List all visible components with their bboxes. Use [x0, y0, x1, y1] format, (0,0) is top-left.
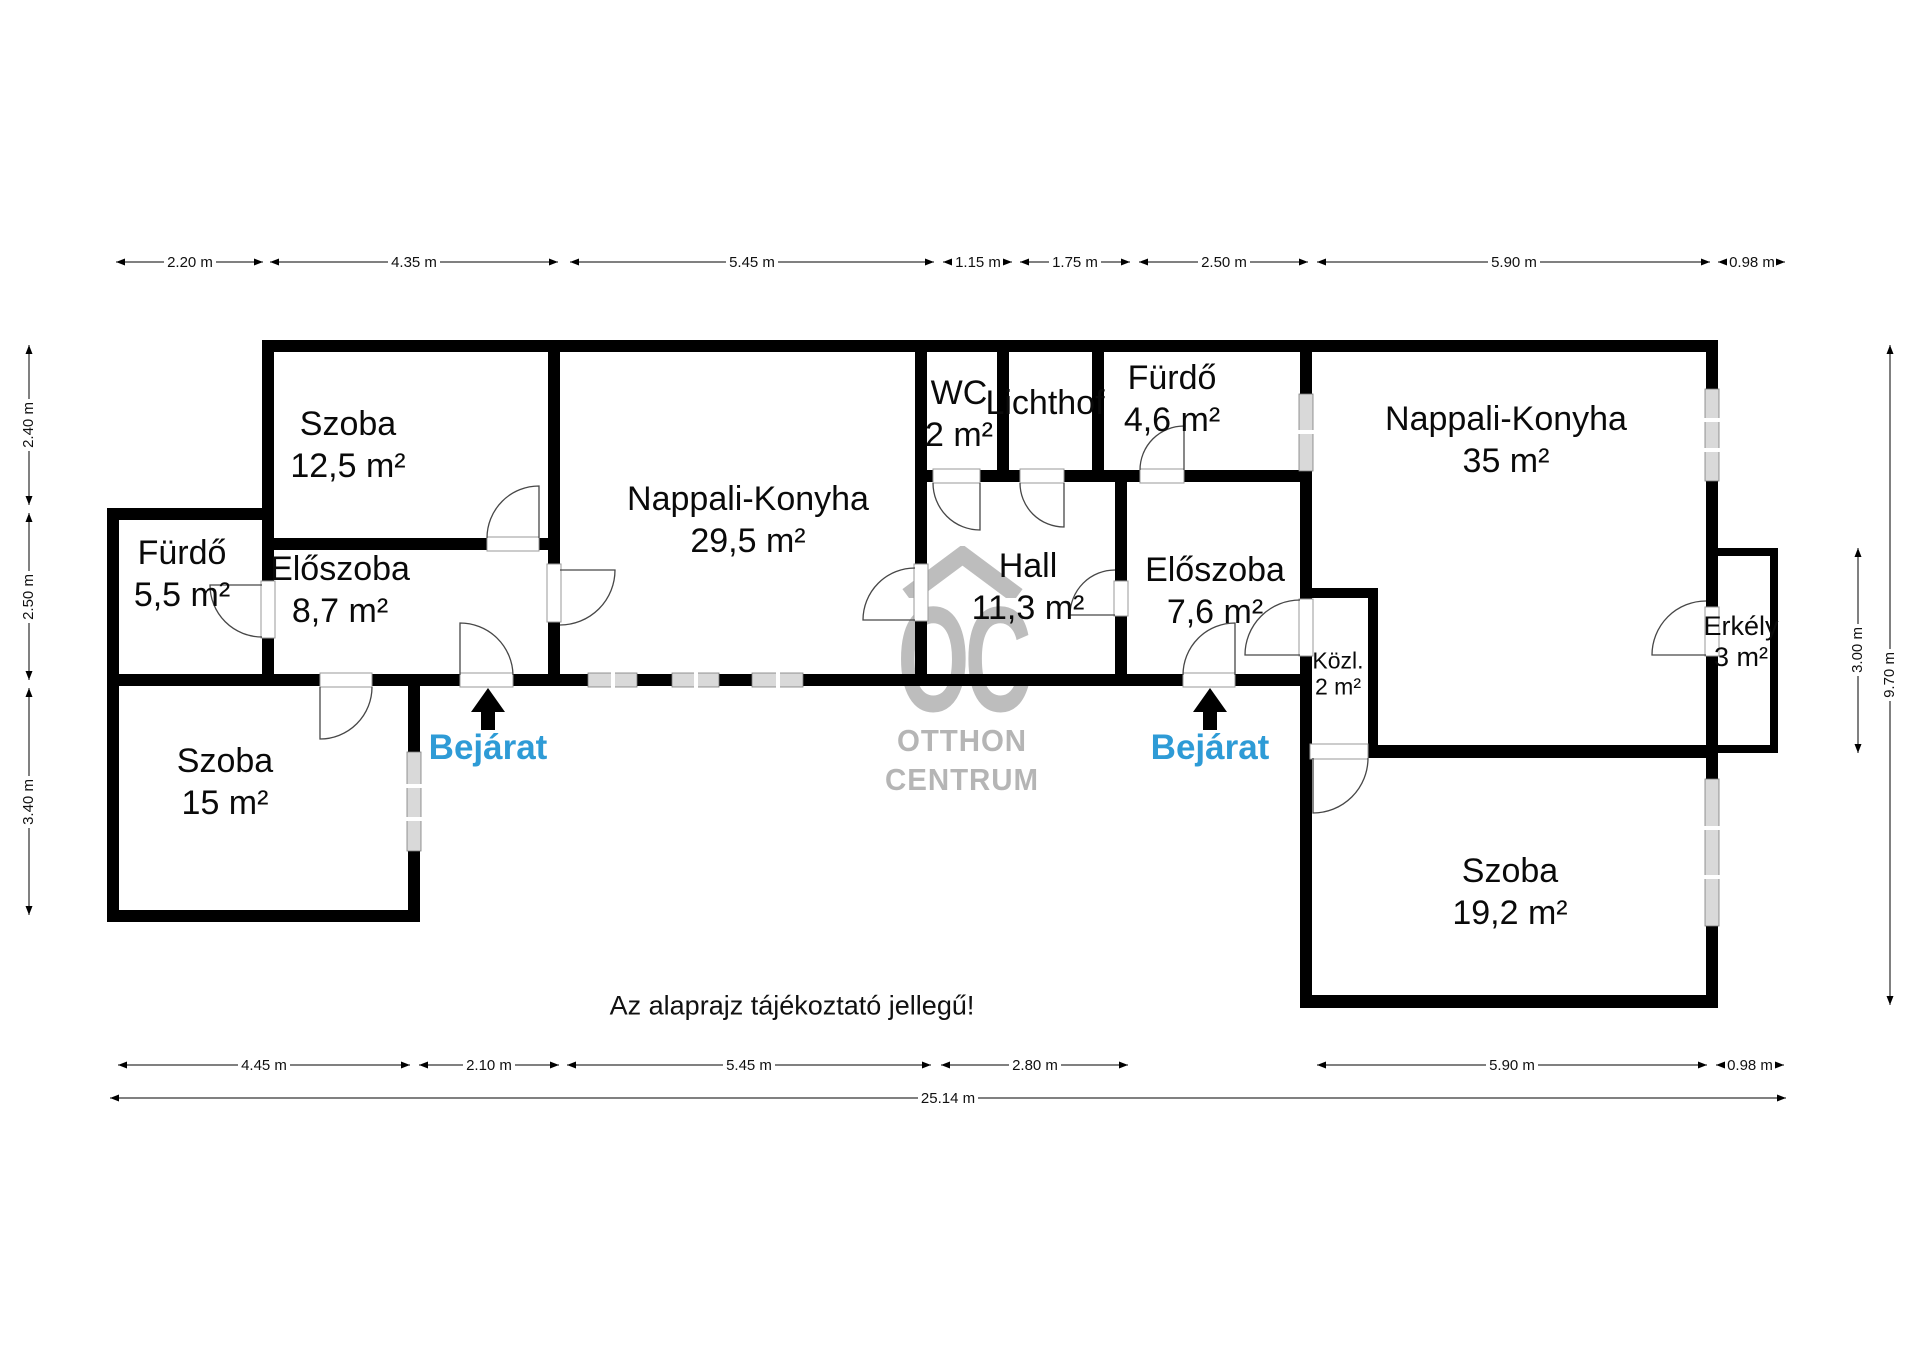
room-label-wc: WC 2 m² — [925, 372, 993, 456]
room-name: Szoba — [290, 403, 405, 445]
room-label-lichthof: Lichthof — [985, 382, 1104, 424]
room-name: Fürdő — [134, 532, 230, 574]
room-area: 35 m² — [1385, 440, 1627, 482]
dimensions-right: 3.00 m 9.70 m — [1849, 345, 1898, 1005]
entrance-label-right: Bejárat — [1151, 728, 1270, 768]
dim-label: 4.35 m — [391, 254, 437, 271]
room-label-nappali-konyha-left: Nappali-Konyha 29,5 m² — [627, 478, 869, 562]
floor-plan-drawing: 2.20 m 4.35 m 5.45 m 1.15 m 1.75 m 2.50 … — [0, 0, 1920, 1358]
entrance-arrow-icon — [471, 688, 505, 730]
dim-label: 9.70 m — [1881, 652, 1898, 698]
dim-label: 2.50 m — [20, 574, 37, 620]
room-area: 12,5 m² — [290, 445, 405, 487]
room-label-kozl: Közl. 2 m² — [1312, 648, 1363, 701]
room-name: Szoba — [1452, 850, 1567, 892]
disclaimer-text: Az alaprajz tájékoztató jellegű! — [610, 991, 975, 1022]
room-area: 8,7 m² — [270, 590, 410, 632]
room-name: WC — [925, 372, 993, 414]
dim-label: 0.98 m — [1727, 1057, 1773, 1074]
dim-label: 3.00 m — [1849, 627, 1866, 673]
room-label-szoba-topleft: Szoba 12,5 m² — [290, 403, 405, 487]
dim-label: 5.90 m — [1489, 1057, 1535, 1074]
room-label-szoba-bottomleft: Szoba 15 m² — [177, 740, 273, 824]
room-label-erkely: Erkély 3 m² — [1703, 611, 1778, 673]
entrance-label-left: Bejárat — [429, 728, 548, 768]
dim-label: 3.40 m — [20, 779, 37, 825]
room-name: Hall — [972, 545, 1085, 587]
room-area: 15 m² — [177, 782, 273, 824]
dim-label: 5.45 m — [726, 1057, 772, 1074]
room-name: Lichthof — [985, 382, 1104, 424]
floor-plan: OC OTTHON CENTRUM — [0, 0, 1920, 1358]
dim-label: 2.10 m — [466, 1057, 512, 1074]
room-area: 5,5 m² — [134, 574, 230, 616]
room-area: 2 m² — [1312, 674, 1363, 700]
dimensions-bottom: 4.45 m 2.10 m 5.45 m 2.80 m 5.90 m 0.98 … — [110, 1057, 1786, 1107]
dim-label: 2.80 m — [1012, 1057, 1058, 1074]
room-name: Fürdő — [1124, 357, 1220, 399]
dimensions-top: 2.20 m 4.35 m 5.45 m 1.15 m 1.75 m 2.50 … — [116, 254, 1785, 271]
room-area: 7,6 m² — [1145, 591, 1285, 633]
room-name: Erkély — [1703, 611, 1778, 642]
dim-label: 0.98 m — [1729, 254, 1775, 271]
room-label-eloszoba-left: Előszoba 8,7 m² — [270, 548, 410, 632]
room-label-eloszoba-right: Előszoba 7,6 m² — [1145, 549, 1285, 633]
dim-label: 5.45 m — [729, 254, 775, 271]
room-name: Előszoba — [1145, 549, 1285, 591]
room-area: 29,5 m² — [627, 520, 869, 562]
dim-label-total: 25.14 m — [921, 1090, 975, 1107]
room-label-furdo-right: Fürdő 4,6 m² — [1124, 357, 1220, 441]
dim-label: 2.50 m — [1201, 254, 1247, 271]
entrance-arrows — [471, 688, 1227, 730]
dim-label: 5.90 m — [1491, 254, 1537, 271]
dim-label: 4.45 m — [241, 1057, 287, 1074]
dim-label: 1.15 m — [955, 254, 1001, 271]
dim-label: 2.20 m — [167, 254, 213, 271]
room-name: Nappali-Konyha — [627, 478, 869, 520]
room-area: 3 m² — [1703, 642, 1778, 673]
room-name: Nappali-Konyha — [1385, 398, 1627, 440]
room-label-nappali-konyha-right: Nappali-Konyha 35 m² — [1385, 398, 1627, 482]
room-area: 4,6 m² — [1124, 399, 1220, 441]
room-label-hall: Hall 11,3 m² — [972, 545, 1085, 629]
dimensions-left: 2.40 m 2.50 m 3.40 m — [20, 345, 37, 915]
dim-label: 2.40 m — [20, 402, 37, 448]
room-area: 19,2 m² — [1452, 892, 1567, 934]
entrance-arrow-icon — [1193, 688, 1227, 730]
room-name: Előszoba — [270, 548, 410, 590]
room-name: Közl. — [1312, 648, 1363, 674]
room-area: 2 m² — [925, 414, 993, 456]
window-pane-ticks — [406, 420, 1720, 877]
room-label-furdo-left: Fürdő 5,5 m² — [134, 532, 230, 616]
dim-label: 1.75 m — [1052, 254, 1098, 271]
room-label-szoba-bottomright: Szoba 19,2 m² — [1452, 850, 1567, 934]
room-name: Szoba — [177, 740, 273, 782]
room-area: 11,3 m² — [972, 587, 1085, 629]
